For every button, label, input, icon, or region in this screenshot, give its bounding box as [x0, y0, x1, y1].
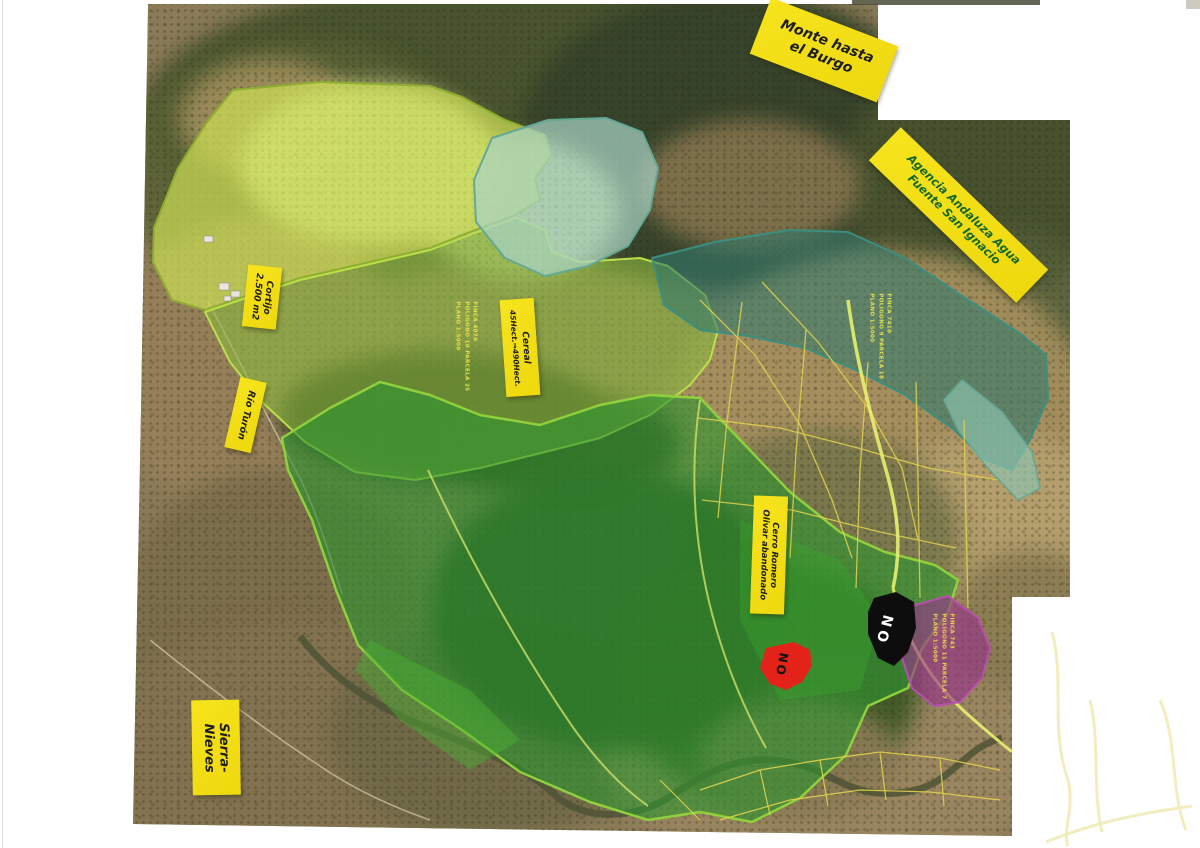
- parcel-text-purple: FINCA 743 POLIGONO 11 PARCELA 7 PLANO 1:…: [931, 613, 956, 691]
- sticky-note-sierra-nieves: Sierra- Nieves: [191, 700, 241, 796]
- margin-pencil-marks: [1046, 632, 1192, 846]
- sticky-note-cereal: Cereal 45Hect.⇒490Hect.: [500, 298, 541, 397]
- note-line: Nieves: [201, 723, 217, 772]
- sticky-note-cerro-romero: Cerro Romero Olivar abandonado: [750, 495, 788, 614]
- note-line: Sierra-: [216, 722, 232, 772]
- note-line: Río Turón: [235, 389, 257, 441]
- sticky-note-cortijo: Cortijo 2.500 m2: [242, 264, 282, 329]
- map-overlay: NO NO: [0, 0, 1200, 848]
- parcel-text-teal: FINCA 7410 POLIGONO 9 PARCELA 18 PLANO 1…: [868, 293, 893, 371]
- photo-corner-sliver: [1186, 0, 1200, 9]
- note-line: Cereal: [519, 331, 531, 364]
- scanned-page: NO NO FINCA 4070 POLIGONO 10 PARCELA 25 …: [0, 0, 1200, 848]
- region-teal-north: [474, 118, 658, 276]
- parcel-text-green: FINCA 4070 POLIGONO 10 PARCELA 25 PLANO …: [454, 301, 479, 379]
- photo-top-sliver: [852, 0, 1040, 5]
